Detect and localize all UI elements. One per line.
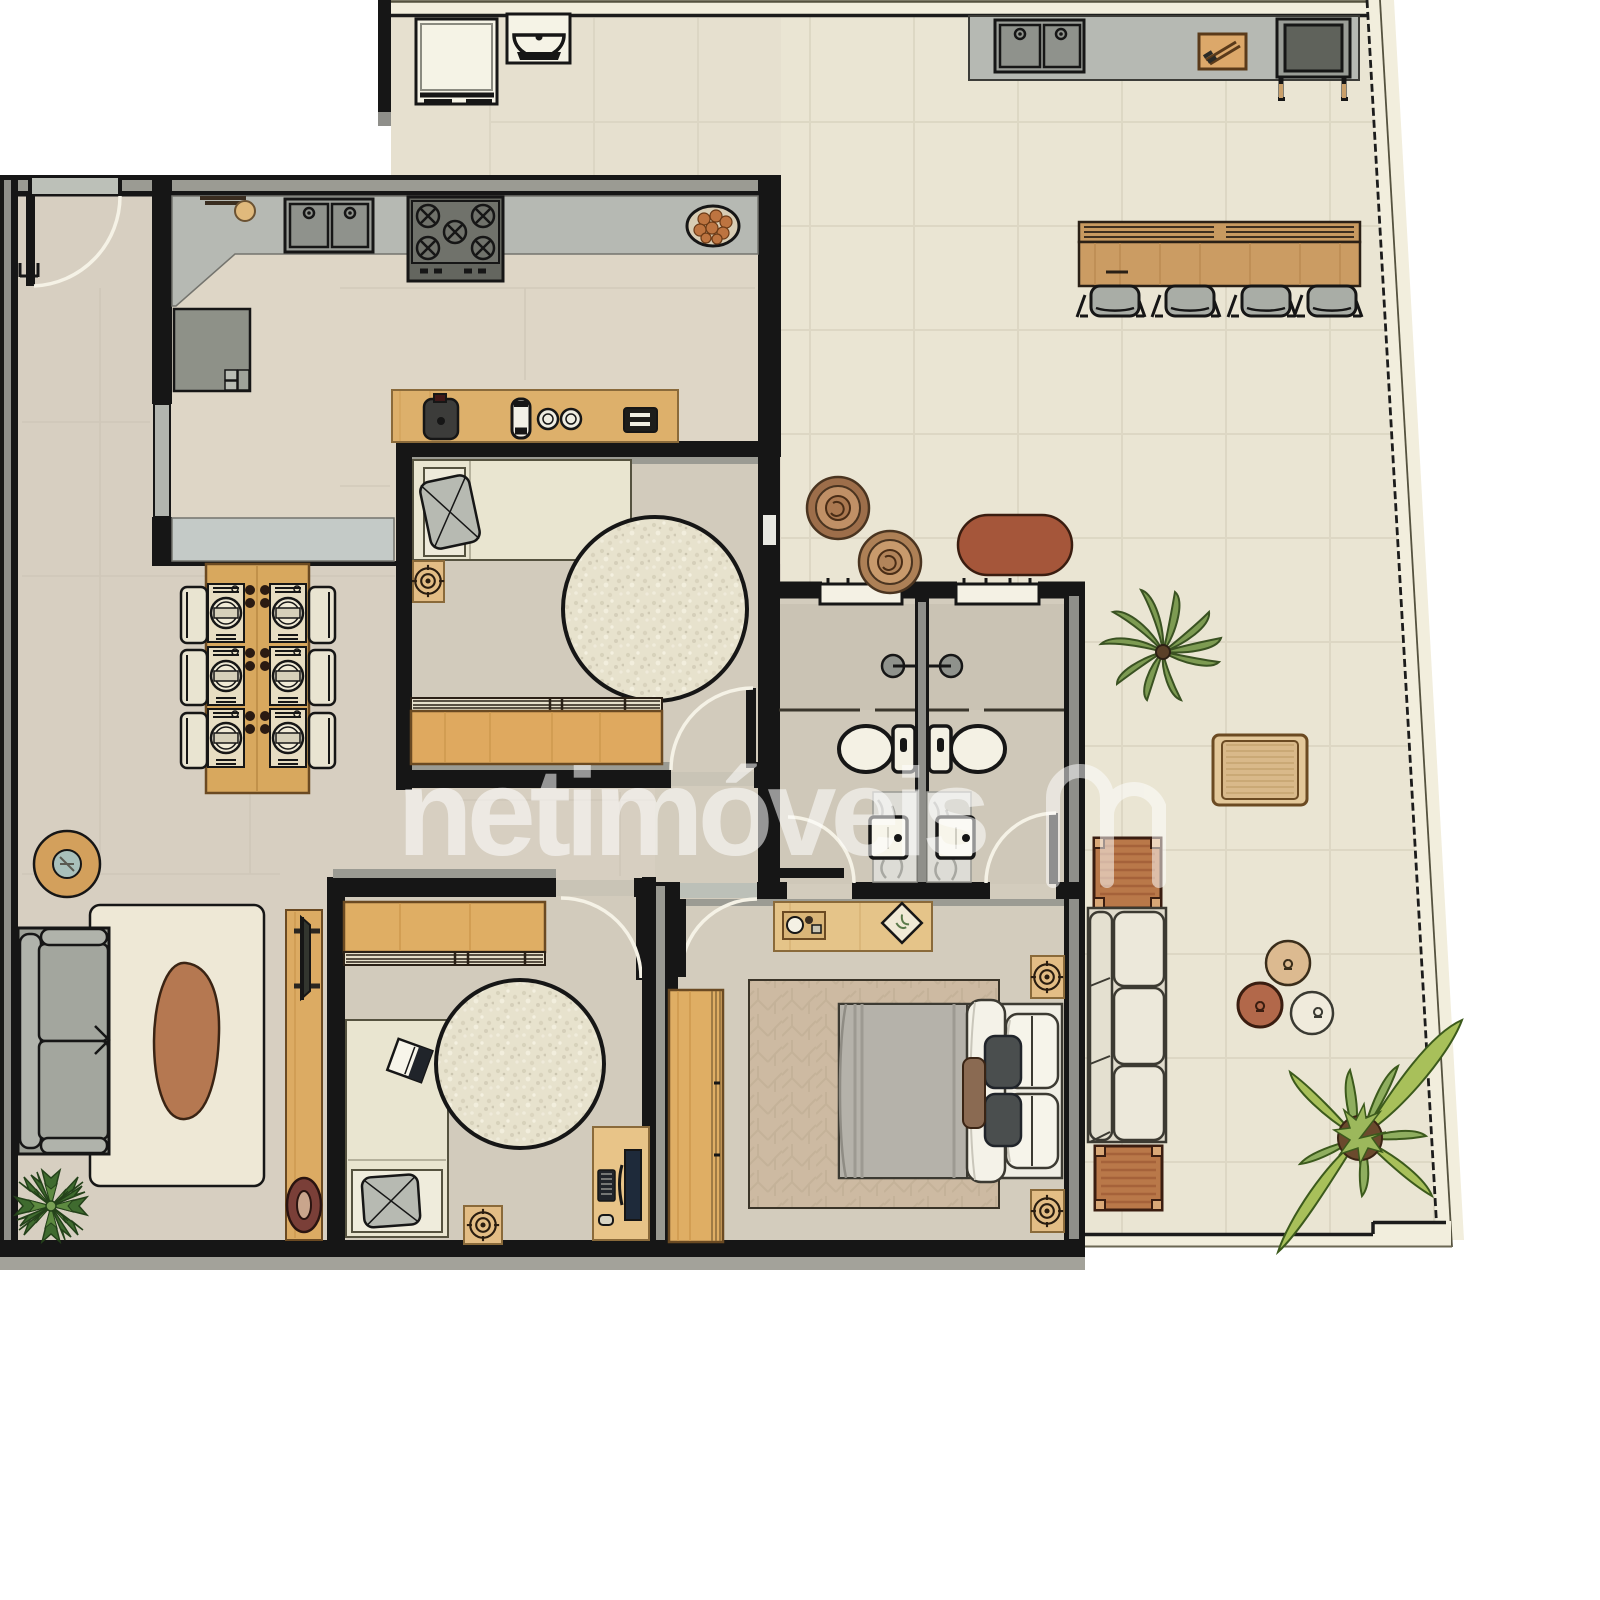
svg-text:netimóveis: netimóveis xyxy=(397,744,986,882)
